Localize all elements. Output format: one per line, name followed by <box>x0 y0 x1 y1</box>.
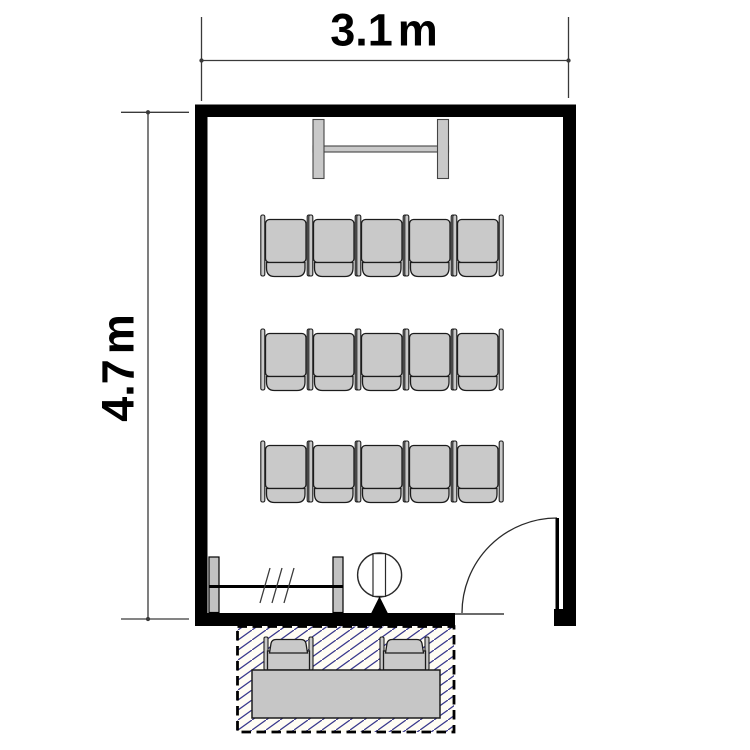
svg-text:4.7m: 4.7m <box>93 314 144 422</box>
svg-text:3.1m: 3.1m <box>330 5 438 56</box>
